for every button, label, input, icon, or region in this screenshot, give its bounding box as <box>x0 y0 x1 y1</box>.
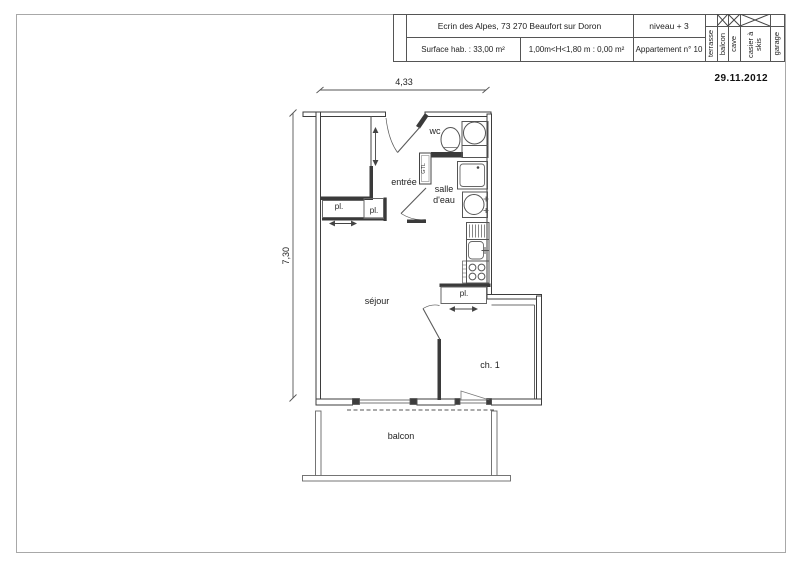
closet-label: pl. <box>452 289 476 298</box>
floor-plan-sheet: Ecrin des Alpes, 73 270 Beaufort sur Dor… <box>0 0 800 566</box>
room-label-balcon: balcon <box>381 431 421 441</box>
room-label-wc: wc <box>425 126 445 136</box>
closets <box>323 199 487 304</box>
dimension-width-label: 4,33 <box>386 77 422 87</box>
room-label-salle-eau: salle d'eau <box>424 184 464 207</box>
washing-machine-icon <box>463 192 489 218</box>
doors <box>386 118 440 340</box>
wc-sink-icon <box>462 122 488 158</box>
closet-label: pl. <box>329 202 349 211</box>
balcony <box>303 410 511 481</box>
room-label-entree: entrée <box>384 177 424 187</box>
interior-walls <box>321 113 491 400</box>
dimension-height-label: 7,30 <box>280 240 293 272</box>
room-label-ch1: ch. 1 <box>470 360 510 370</box>
kitchen-hob-icon <box>463 261 490 283</box>
drainboard-icon <box>467 223 490 240</box>
kitchen-sink-icon <box>467 240 490 262</box>
closet-label: pl. <box>366 206 382 215</box>
room-label-sejour: séjour <box>357 296 397 306</box>
gtl-label: GTL <box>419 153 431 184</box>
